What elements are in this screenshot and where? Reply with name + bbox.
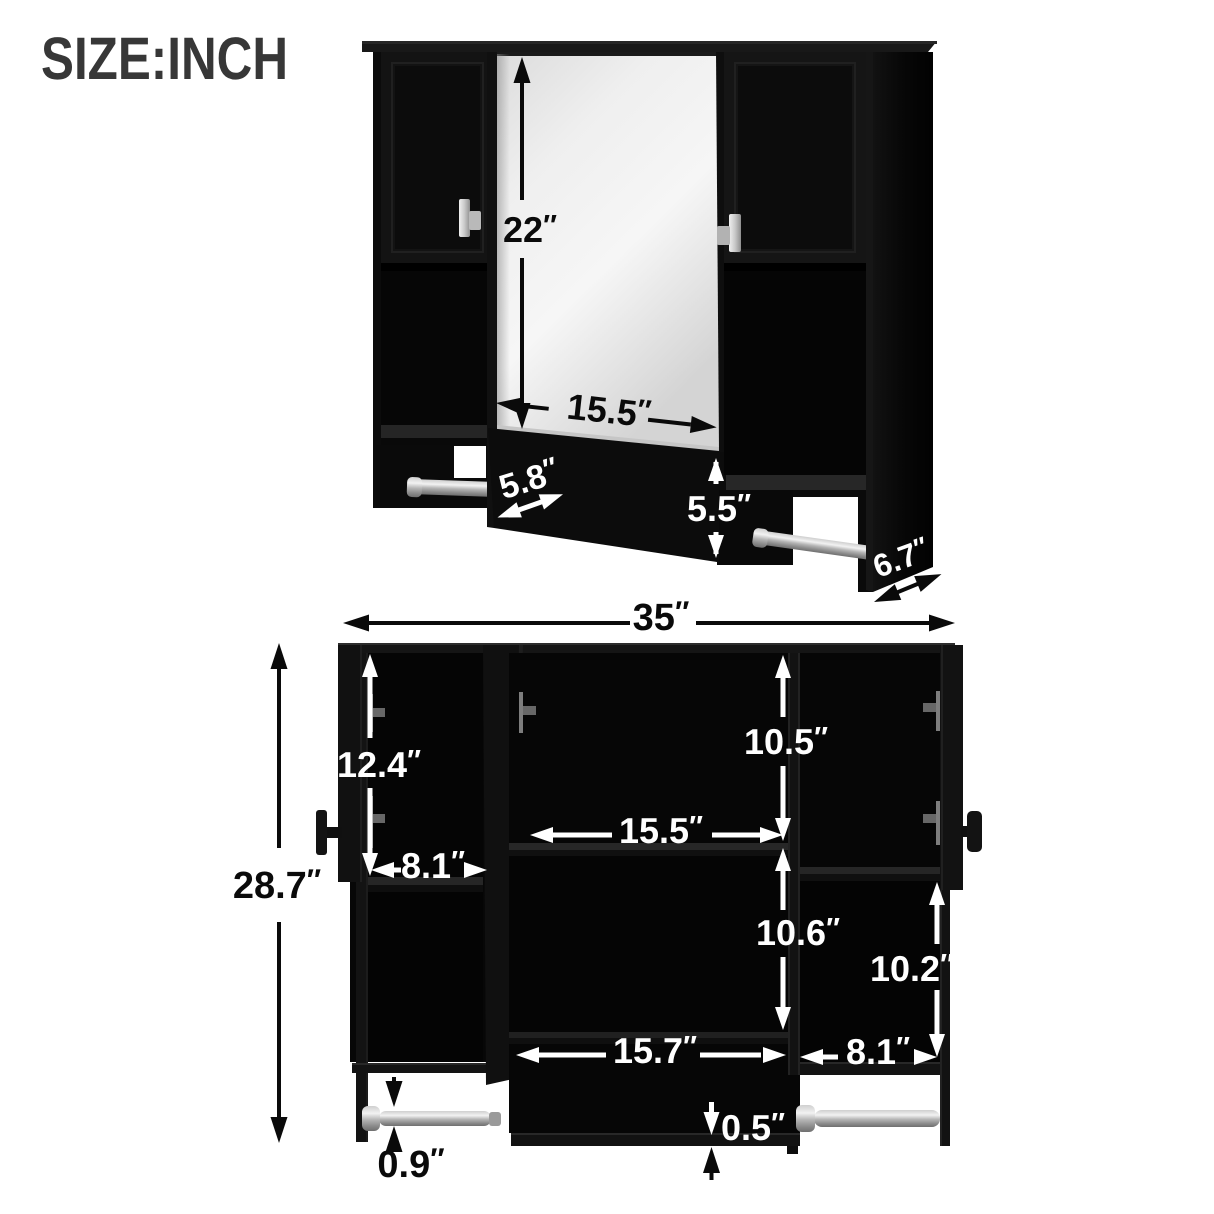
svg-text:SIZE:INCH: SIZE:INCH (41, 25, 288, 92)
